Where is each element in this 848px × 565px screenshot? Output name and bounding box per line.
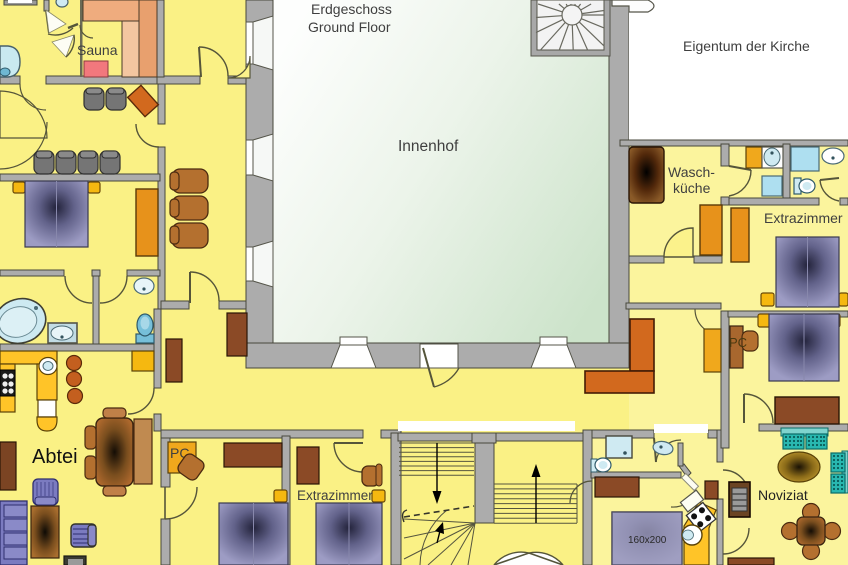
svg-text:Erdgeschoss: Erdgeschoss	[311, 1, 392, 17]
svg-text:Ground Floor: Ground Floor	[308, 19, 391, 35]
svg-text:160x200: 160x200	[628, 535, 667, 546]
svg-text:Innenhof: Innenhof	[398, 138, 459, 155]
svg-text:Noviziat: Noviziat	[758, 487, 808, 503]
svg-text:Sauna: Sauna	[77, 42, 118, 58]
svg-text:Extrazimmer: Extrazimmer	[764, 210, 843, 226]
svg-text:Extrazimmer: Extrazimmer	[297, 488, 373, 503]
svg-text:küche: küche	[673, 180, 711, 196]
svg-text:PC: PC	[729, 335, 747, 350]
svg-text:Eigentum der Kirche: Eigentum der Kirche	[683, 38, 810, 54]
svg-text:Wasch-: Wasch-	[668, 164, 715, 180]
svg-text:Abtei: Abtei	[32, 446, 78, 468]
